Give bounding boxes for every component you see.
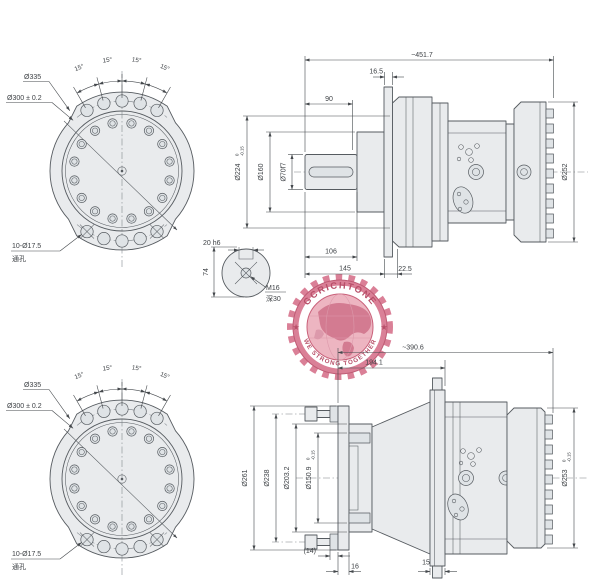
dim-label-flange-position: 194.1 — [365, 360, 383, 367]
shaft-keyway — [309, 167, 353, 177]
bolt-hole — [165, 484, 174, 493]
mounting-stud-top — [305, 406, 338, 422]
through-holes-callout: 10-Ø17.5 通孔 — [11, 235, 82, 264]
bolt-hole — [165, 465, 174, 474]
tol-lower: -0.15 — [566, 452, 571, 462]
bolt-hole — [116, 235, 128, 247]
angle-label-2: 15° — [102, 55, 113, 64]
housing-body — [393, 97, 433, 247]
holes-count-label: 10-Ø17.5 — [12, 243, 41, 250]
flange-front-view-bottom: 15° 15° 15° 15° Ø335 Ø300 ± 0.2 10-Ø17.5… — [6, 363, 194, 577]
side-section-view-bottom: ~390.6 194.1 Ø261 Ø238 Ø203.2 Ø150.9 0 -… — [242, 345, 588, 579]
dim-label-flange-thickness: 16.5 — [369, 69, 383, 76]
tol-lower: -0.15 — [239, 146, 244, 156]
flange-tab-bottom — [433, 566, 443, 578]
bolt-hole — [98, 405, 110, 417]
bolt-hole — [77, 501, 86, 510]
bolt-hole — [108, 427, 117, 436]
flange-tab-top — [433, 378, 443, 390]
angle-label-4: 15° — [159, 370, 171, 381]
center-bolt — [469, 165, 484, 180]
housing-neck — [506, 124, 514, 220]
bolt-hole — [108, 522, 117, 531]
cone-section — [372, 402, 430, 554]
bolt-circle-label: Ø300 ± 0.2 — [7, 95, 42, 102]
mid-mounting-flange — [430, 390, 445, 566]
bolt-hole — [144, 207, 153, 216]
center-dot — [121, 170, 124, 173]
dim-label-front-length: 145 — [339, 266, 351, 273]
bolt-hole — [77, 139, 86, 148]
bolt-hole — [81, 104, 93, 116]
dim-flange-thickness: 16.5 — [369, 69, 404, 86]
dim-label-outer-flange: Ø261 — [242, 469, 249, 486]
bolt-hole — [144, 434, 153, 443]
outer-diameter-callout: Ø335 — [23, 382, 70, 419]
dim-label-bolt-circle: Ø238 — [264, 469, 271, 486]
bolt-hole — [144, 515, 153, 524]
bolt-hole — [70, 484, 79, 493]
bolt-hole — [127, 427, 136, 436]
ring-gear-flange — [507, 408, 545, 548]
bolt-hole — [151, 104, 163, 116]
side-section-view-top: ~451.7 16.5 90 Ø224 0 -0.15 Ø160 Ø70f7 — [235, 52, 589, 278]
dim-text: Ø150.9 — [306, 466, 313, 489]
bolt-hole — [98, 540, 110, 552]
angle-label-3: 15° — [131, 363, 142, 372]
technical-drawing-canvas: ★ ★ GCRICHTONE WE STRONG TOGETHER 15° 15… — [0, 0, 600, 582]
bolt-hole — [158, 139, 167, 148]
spline-teeth — [546, 109, 554, 238]
pilot-ring-bottom — [349, 513, 370, 523]
dim-label-section-height: 74 — [203, 268, 210, 276]
holes-count-label: 10-Ø17.5 — [12, 551, 41, 558]
bolt-hole — [165, 176, 174, 185]
spline-teeth — [545, 415, 553, 544]
flange-front-view-top: 15° 15° 15° 15° Ø335 Ø300 ± 0.2 10-Ø17.5… — [6, 55, 194, 269]
bolt-hole — [158, 501, 167, 510]
angle-label-1: 15° — [73, 370, 85, 381]
dim-label-plate-thickness: 16 — [351, 564, 359, 571]
thread-depth-label: 深30 — [266, 294, 281, 303]
bolt-circle-label: Ø300 ± 0.2 — [7, 403, 42, 410]
dim-plate-thickness: 16 — [326, 552, 361, 575]
bolt-circle-callout: Ø300 ± 0.2 — [6, 95, 73, 120]
bolt-hole — [77, 193, 86, 202]
bolt-hole — [108, 119, 117, 128]
dim-label-overall: ~451.7 — [411, 52, 433, 59]
dim-label-ring-gear: Ø253 0 -0.15 — [562, 452, 572, 487]
holes-note-label: 通孔 — [12, 254, 26, 263]
bolt-hole — [144, 126, 153, 135]
bolt-circle-callout: Ø300 ± 0.2 — [6, 403, 73, 428]
shaft-spigot — [357, 132, 384, 212]
dim-text: Ø253 — [562, 469, 569, 486]
bolt-hole — [90, 434, 99, 443]
angle-label-2: 15° — [102, 363, 113, 372]
dim-label-stud-washer: (14) — [304, 548, 316, 555]
bolt-hole — [70, 176, 79, 185]
holes-note-label: 通孔 — [12, 562, 26, 571]
bolt-hole — [108, 214, 117, 223]
bolt-hole — [90, 207, 99, 216]
mounting-flange — [384, 87, 393, 257]
bolt-hole — [127, 119, 136, 128]
bolt-hole — [70, 157, 79, 166]
dim-label-shaft-length: 106 — [325, 249, 337, 256]
angle-label-3: 15° — [131, 55, 142, 64]
bolt-hole — [158, 193, 167, 202]
angle-label-1: 15° — [73, 62, 85, 73]
rear-body — [445, 402, 507, 554]
mounting-plate — [338, 406, 349, 550]
bolt-hole — [90, 515, 99, 524]
bolt-hole — [127, 522, 136, 531]
dim-label-spigot: Ø203.2 — [284, 466, 291, 489]
bolt-hole — [70, 465, 79, 474]
bolt-hole — [116, 543, 128, 555]
dim-label-ring-gear: Ø252 — [562, 163, 569, 180]
shaft-end-detail-view: 20 h6 74 M16 深30 — [203, 240, 286, 303]
bolt-hole — [90, 126, 99, 135]
bolt-hole — [134, 97, 146, 109]
pilot-ring-top — [349, 433, 370, 443]
thread-label: M16 — [266, 285, 280, 292]
dim-label-mid-flange-thickness: 15 — [422, 560, 430, 567]
bolt-hole — [134, 540, 146, 552]
center-dot — [121, 478, 124, 481]
outer-diameter-callout: Ø335 — [23, 74, 70, 111]
bolt-hole — [98, 97, 110, 109]
through-holes-callout: 10-Ø17.5 通孔 — [11, 543, 82, 572]
center-bolt — [459, 471, 474, 486]
dim-label-key-width: 20 h6 — [203, 240, 221, 247]
dim-text: Ø224 — [235, 163, 242, 180]
dim-front-length: 145 — [305, 259, 385, 278]
bolt-hole — [158, 447, 167, 456]
watermark-star-right: ★ — [380, 322, 388, 332]
outer-diameter-label: Ø335 — [24, 74, 41, 81]
bolt-hole — [127, 214, 136, 223]
dim-key-length: 90 — [305, 96, 353, 150]
bolt-hole — [81, 412, 93, 424]
flange-bolt — [517, 165, 531, 179]
angle-label-4: 15° — [159, 62, 171, 73]
bolt-hole — [98, 232, 110, 244]
dim-label-pilot: Ø150.9 0 -0.15 — [306, 450, 316, 490]
bolt-hole — [134, 405, 146, 417]
dim-label-spigot: Ø224 0 -0.15 — [235, 146, 245, 181]
dim-label-key-length: 90 — [325, 96, 333, 103]
bolt-hole — [151, 412, 163, 424]
dim-label-shaft: Ø70f7 — [281, 162, 288, 181]
bolt-hole — [77, 447, 86, 456]
dim-label-pilot: Ø160 — [258, 163, 265, 180]
technical-drawing-page: ★ ★ GCRICHTONE WE STRONG TOGETHER 15° 15… — [0, 0, 600, 582]
dim-bolt-circle-diameter: Ø238 — [264, 414, 276, 542]
outer-diameter-label: Ø335 — [24, 382, 41, 389]
dim-label-overall: ~390.6 — [402, 345, 424, 352]
tol-lower: -0.15 — [310, 450, 315, 460]
dim-key-width: 20 h6 — [203, 240, 264, 250]
watermark-star-left: ★ — [292, 322, 300, 332]
dim-label-rear-length: 22.5 — [398, 266, 412, 273]
bolt-hole — [134, 232, 146, 244]
bolt-hole — [165, 157, 174, 166]
